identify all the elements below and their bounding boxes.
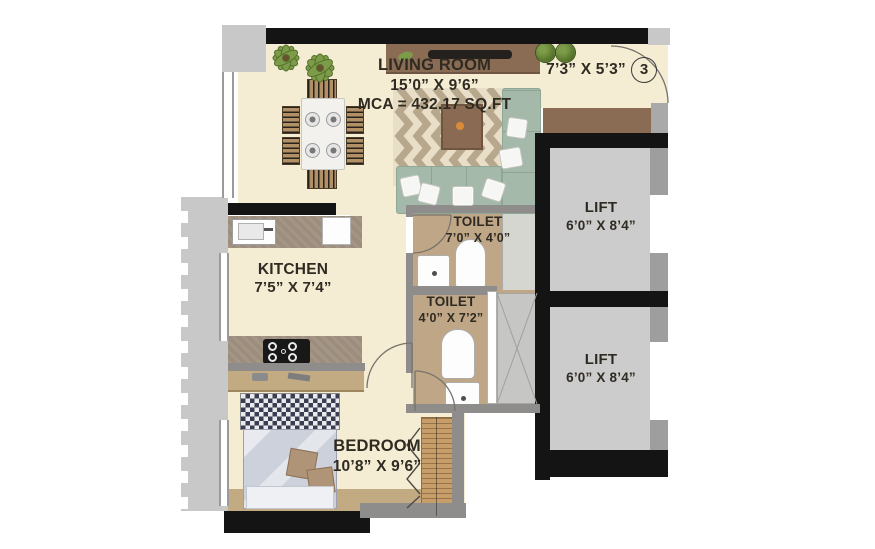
foyer-console <box>543 108 653 135</box>
room-name: TOILET <box>428 214 528 231</box>
plate-icon <box>305 112 320 127</box>
wall <box>360 503 466 518</box>
wall <box>224 511 370 533</box>
dining-table <box>301 98 345 170</box>
room-dimensions: 15’0” X 9’6” <box>352 76 517 95</box>
floor-plan: LIVING ROOM 15’0” X 9’6” MCA = 432.17 SQ… <box>0 0 875 549</box>
lift-2-label: LIFT 6’0” X 8’4” <box>552 351 650 387</box>
cushion-icon <box>498 146 523 170</box>
dining-chair <box>346 137 364 165</box>
wall <box>224 203 336 215</box>
kitchen-label: KITCHEN 7’5” X 7’4” <box>238 260 348 298</box>
faucet-icon <box>264 228 273 231</box>
room-dimensions: 7’3” X 5’3” <box>538 60 634 79</box>
living-room-label: LIVING ROOM 15’0” X 9’6” MCA = 432.17 SQ… <box>352 55 517 114</box>
toilet-2-label: TOILET 4’0” X 7’2” <box>408 294 494 327</box>
wall <box>550 450 668 477</box>
sink-icon <box>417 255 450 288</box>
decor-tray-icon <box>252 373 268 381</box>
lift-door-jamb <box>650 307 668 342</box>
burner-icon <box>288 353 297 362</box>
room-area: MCA = 432.17 SQ.FT <box>352 95 517 114</box>
burner-icon <box>268 353 277 362</box>
burner-icon <box>281 349 286 354</box>
room-dimensions: 7’0” X 4’0” <box>428 231 528 247</box>
room-dimensions: 7’5” X 7’4” <box>238 279 348 298</box>
window <box>219 253 229 341</box>
sink-bowl <box>238 223 264 240</box>
toilet-1-label: TOILET 7’0” X 4’0” <box>428 214 528 247</box>
window <box>219 420 229 506</box>
burner-icon <box>268 342 277 351</box>
bed-sheet <box>246 486 334 509</box>
bedroom-label: BEDROOM 10’8” X 9’6” <box>318 436 436 476</box>
wc-icon <box>441 329 475 379</box>
room-name: LIVING ROOM <box>352 55 517 76</box>
bed-headboard <box>240 393 340 430</box>
dining-chair <box>282 137 300 165</box>
plate-icon <box>326 112 341 127</box>
room-name: KITCHEN <box>238 260 348 279</box>
plate-icon <box>326 143 341 158</box>
room-name: LIFT <box>552 351 650 370</box>
room-dimensions: 6’0” X 8’4” <box>552 218 650 235</box>
room-dimensions: 10’8” X 9’6” <box>318 457 436 476</box>
room-name: TOILET <box>408 294 494 311</box>
candle-icon <box>456 122 464 130</box>
duct-shaft <box>497 293 537 404</box>
exterior-wall-serration <box>181 197 189 511</box>
room-name: LIFT <box>552 199 650 218</box>
lift-door-jamb <box>650 420 668 450</box>
foyer-label: 7’3” X 5’3” <box>538 60 634 79</box>
fridge-icon <box>322 217 351 245</box>
wall <box>406 404 540 413</box>
room-name: BEDROOM <box>318 436 436 457</box>
burner-icon <box>288 342 297 351</box>
wc-icon <box>455 239 486 289</box>
wall <box>408 205 535 213</box>
exterior-wall <box>648 28 670 45</box>
wall <box>266 28 670 44</box>
room-dimensions: 6’0” X 8’4” <box>552 370 650 387</box>
dining-chair <box>282 106 300 134</box>
wall <box>224 363 365 371</box>
window <box>222 72 234 198</box>
wall-end-cap <box>651 103 668 135</box>
wall <box>452 413 464 517</box>
exterior-wall <box>222 25 266 72</box>
wall <box>535 133 668 148</box>
dresser <box>228 368 364 392</box>
wall <box>535 135 550 480</box>
wardrobe-divider <box>436 417 437 516</box>
wall <box>550 291 668 307</box>
dining-chair <box>307 169 337 189</box>
plate-icon <box>305 143 320 158</box>
lift-1-label: LIFT 6’0” X 8’4” <box>552 199 650 235</box>
door-number-badge: 3 <box>631 57 657 83</box>
lift-door-jamb <box>650 253 668 291</box>
cushion-icon <box>506 117 529 140</box>
room-dimensions: 4’0” X 7’2” <box>408 311 494 327</box>
lift-door-jamb <box>650 148 668 195</box>
cushion-icon <box>452 186 474 206</box>
wall <box>406 205 413 217</box>
